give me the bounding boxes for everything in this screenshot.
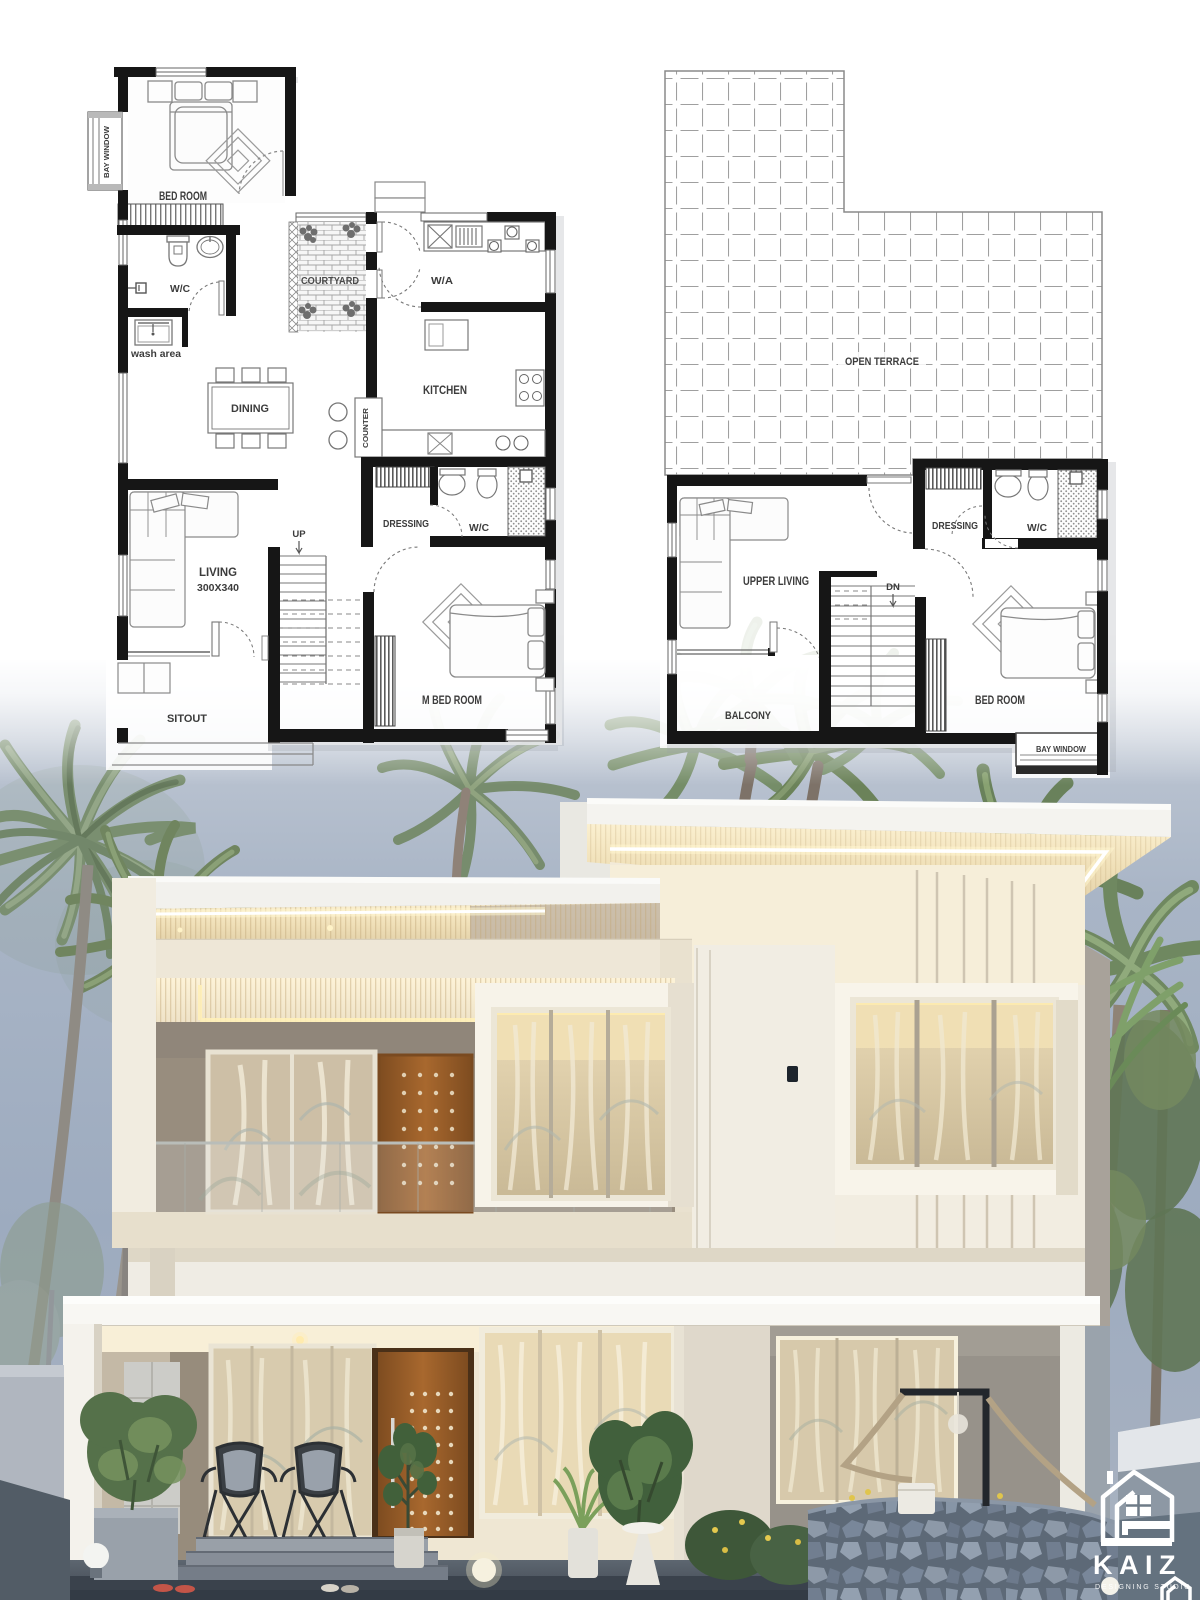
svg-text:COUNTER: COUNTER bbox=[361, 407, 370, 448]
svg-text:BED ROOM: BED ROOM bbox=[159, 191, 207, 203]
svg-text:DESIGNING STUDIO: DESIGNING STUDIO bbox=[1095, 1584, 1191, 1591]
svg-text:W/C: W/C bbox=[469, 522, 489, 534]
svg-text:OPEN TERRACE: OPEN TERRACE bbox=[845, 356, 919, 368]
svg-text:BAY WINDOW: BAY WINDOW bbox=[1036, 745, 1086, 754]
svg-text:BAY WINDOW: BAY WINDOW bbox=[102, 125, 111, 178]
svg-text:M BED ROOM: M BED ROOM bbox=[422, 695, 482, 707]
svg-text:SITOUT: SITOUT bbox=[167, 713, 207, 725]
svg-text:COURTYARD: COURTYARD bbox=[301, 275, 359, 287]
svg-text:300X340: 300X340 bbox=[197, 582, 239, 594]
svg-text:DRESSING: DRESSING bbox=[932, 520, 978, 532]
svg-text:DINING: DINING bbox=[231, 403, 269, 415]
svg-text:W/C: W/C bbox=[1027, 522, 1047, 534]
svg-text:DN: DN bbox=[886, 582, 900, 593]
svg-text:BALCONY: BALCONY bbox=[725, 710, 772, 722]
svg-text:UP: UP bbox=[292, 529, 306, 540]
svg-text:W/C: W/C bbox=[170, 283, 190, 295]
svg-text:DRESSING: DRESSING bbox=[383, 518, 429, 530]
svg-text:UPPER LIVING: UPPER LIVING bbox=[743, 576, 809, 588]
svg-text:BED ROOM: BED ROOM bbox=[975, 695, 1025, 707]
svg-text:W/A: W/A bbox=[431, 275, 453, 287]
svg-text:wash area: wash area bbox=[130, 348, 181, 360]
svg-text:LIVING: LIVING bbox=[199, 567, 237, 579]
svg-text:KITCHEN: KITCHEN bbox=[423, 385, 467, 397]
svg-text:KAIZ: KAIZ bbox=[1093, 1550, 1182, 1580]
